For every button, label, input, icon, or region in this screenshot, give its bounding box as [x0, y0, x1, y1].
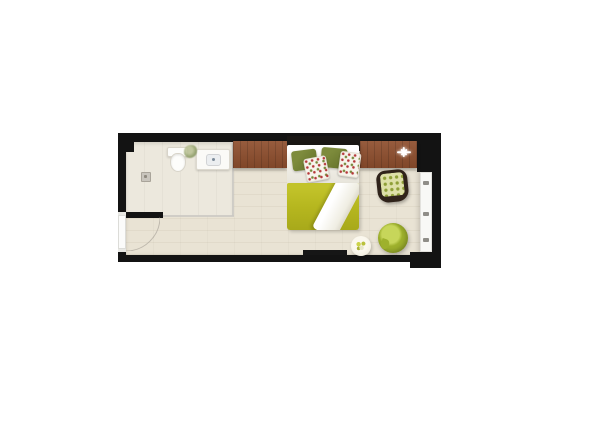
flower-decor-icon: [355, 240, 367, 252]
window-frame-mark: [423, 181, 429, 185]
duvet: [287, 183, 359, 230]
window-right: [420, 172, 432, 252]
wall-block-top-right: [417, 133, 441, 172]
window-frame-mark: [423, 212, 429, 216]
wall-block-bottom-right: [410, 252, 441, 268]
tv-board: [303, 250, 347, 255]
bathroom-glass-partition-front: [163, 215, 234, 217]
sink-counter: [196, 149, 230, 170]
wall-bottom: [118, 255, 441, 262]
door-swing-arc: [126, 217, 160, 251]
sparkle-icon: [396, 144, 412, 160]
pillow-floral-right: [337, 151, 361, 179]
sink-drain-icon: [212, 158, 215, 161]
sink-basin: [206, 154, 221, 166]
window-frame-mark: [423, 238, 429, 242]
console-right: [360, 141, 417, 168]
green-armchair: [378, 223, 408, 253]
toilet: [170, 153, 186, 172]
pillow-floral-left: [303, 155, 330, 183]
checkered-chair-cushion: [380, 172, 405, 197]
bed-throw: [312, 183, 359, 230]
checkered-chair: [375, 168, 409, 203]
wall-block-top-left: [118, 133, 134, 152]
side-table: [351, 236, 371, 256]
floor-drain: [141, 172, 151, 182]
page-background: { "scene": { "kind": "top-down-floor-pla…: [0, 0, 614, 434]
console-left: [233, 141, 287, 168]
floor-plan: [118, 133, 441, 268]
entrance-door: [118, 215, 126, 249]
door-frame-bottom: [118, 249, 126, 252]
